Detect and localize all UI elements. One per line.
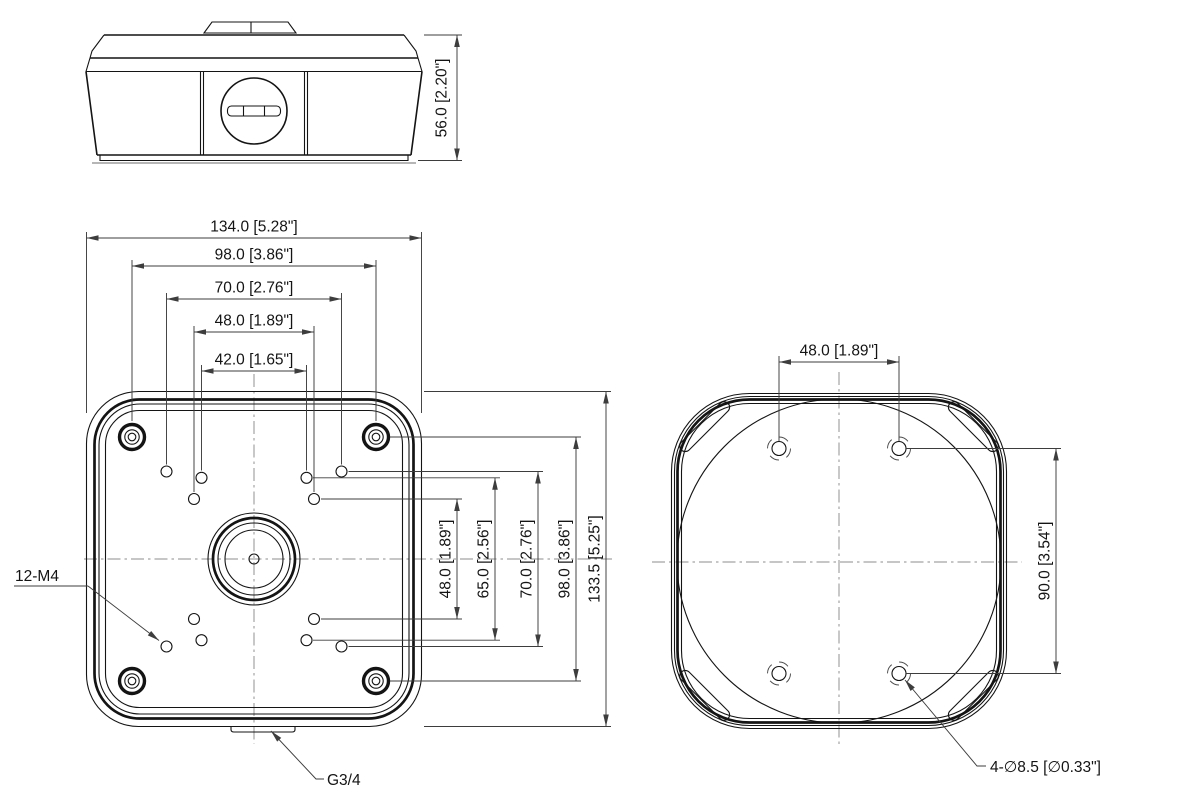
dim-front-height-98: 98.0 [3.86"] xyxy=(557,520,574,599)
dim-front-width-134: 134.0 [5.28"] xyxy=(210,219,297,236)
front-corner-screw xyxy=(120,425,145,450)
m4-hole xyxy=(189,494,200,505)
conduit-thread-callout: G3/4 xyxy=(271,731,361,789)
thread-holes-label: 12-M4 xyxy=(15,568,59,585)
dim-side-height: 56.0 [2.20"] xyxy=(434,59,451,138)
side-view-panel-seams xyxy=(201,72,308,156)
m4-hole xyxy=(336,466,347,477)
technical-drawing-page: 56.0 [2.20"] xyxy=(0,0,1186,800)
m4-hole xyxy=(196,472,207,483)
front-conduit-tab xyxy=(231,727,295,733)
front-view: 134.0 [5.28"] 98.0 [3.86"] 70.0 [2.76"] … xyxy=(14,219,612,790)
dim-bottom-height-90: 90.0 [3.54"] xyxy=(1037,522,1054,601)
m4-hole xyxy=(189,614,200,625)
dim-front-height-70: 70.0 [2.76"] xyxy=(519,520,536,599)
side-view: 56.0 [2.20"] xyxy=(86,22,462,163)
mount-hole xyxy=(892,667,906,681)
front-corner-screw xyxy=(364,669,389,694)
side-view-cap-right xyxy=(404,35,418,58)
bottom-height-dimension: 90.0 [3.54"] xyxy=(906,449,1061,674)
dim-front-width-98: 98.0 [3.86"] xyxy=(215,247,294,264)
front-corner-screw xyxy=(120,669,145,694)
m4-hole xyxy=(309,494,320,505)
m4-hole xyxy=(161,466,172,477)
dim-front-width-70: 70.0 [2.76"] xyxy=(215,280,294,297)
m4-hole xyxy=(301,472,312,483)
m4-hole xyxy=(301,635,312,646)
dim-front-width-42: 42.0 [1.65"] xyxy=(215,352,294,369)
m4-hole xyxy=(336,641,347,652)
side-view-rim-sides xyxy=(86,58,422,72)
m4-hole xyxy=(161,641,172,652)
dim-front-height-48: 48.0 [1.89"] xyxy=(438,520,455,599)
mount-hole xyxy=(892,442,906,456)
side-view-base xyxy=(100,155,408,161)
conduit-thread-label: G3/4 xyxy=(327,772,361,789)
dim-bottom-width-48: 48.0 [1.89"] xyxy=(800,343,879,360)
mount-holes-label: 4-∅8.5 [∅0.33"] xyxy=(990,759,1101,776)
side-view-cap-left xyxy=(90,35,104,58)
m4-hole xyxy=(309,614,320,625)
side-view-screw-cover xyxy=(221,78,287,144)
m4-hole xyxy=(196,635,207,646)
dim-front-height-133: 133.5 [5.25"] xyxy=(587,515,604,602)
mount-hole xyxy=(772,442,786,456)
technical-drawing: 56.0 [2.20"] xyxy=(0,0,1186,800)
bottom-view: 48.0 [1.89"] 90.0 [3.54"] 4-∅8.5 [∅0.33"… xyxy=(652,343,1101,777)
side-height-dimension: 56.0 [2.20"] xyxy=(418,35,462,161)
front-corner-screw xyxy=(364,425,389,450)
side-view-top-knockout xyxy=(204,22,296,33)
mount-hole xyxy=(772,667,786,681)
dim-front-width-48: 48.0 [1.89"] xyxy=(215,313,294,330)
dim-front-height-65: 65.0 [2.56"] xyxy=(476,520,493,599)
side-view-body xyxy=(86,72,422,156)
